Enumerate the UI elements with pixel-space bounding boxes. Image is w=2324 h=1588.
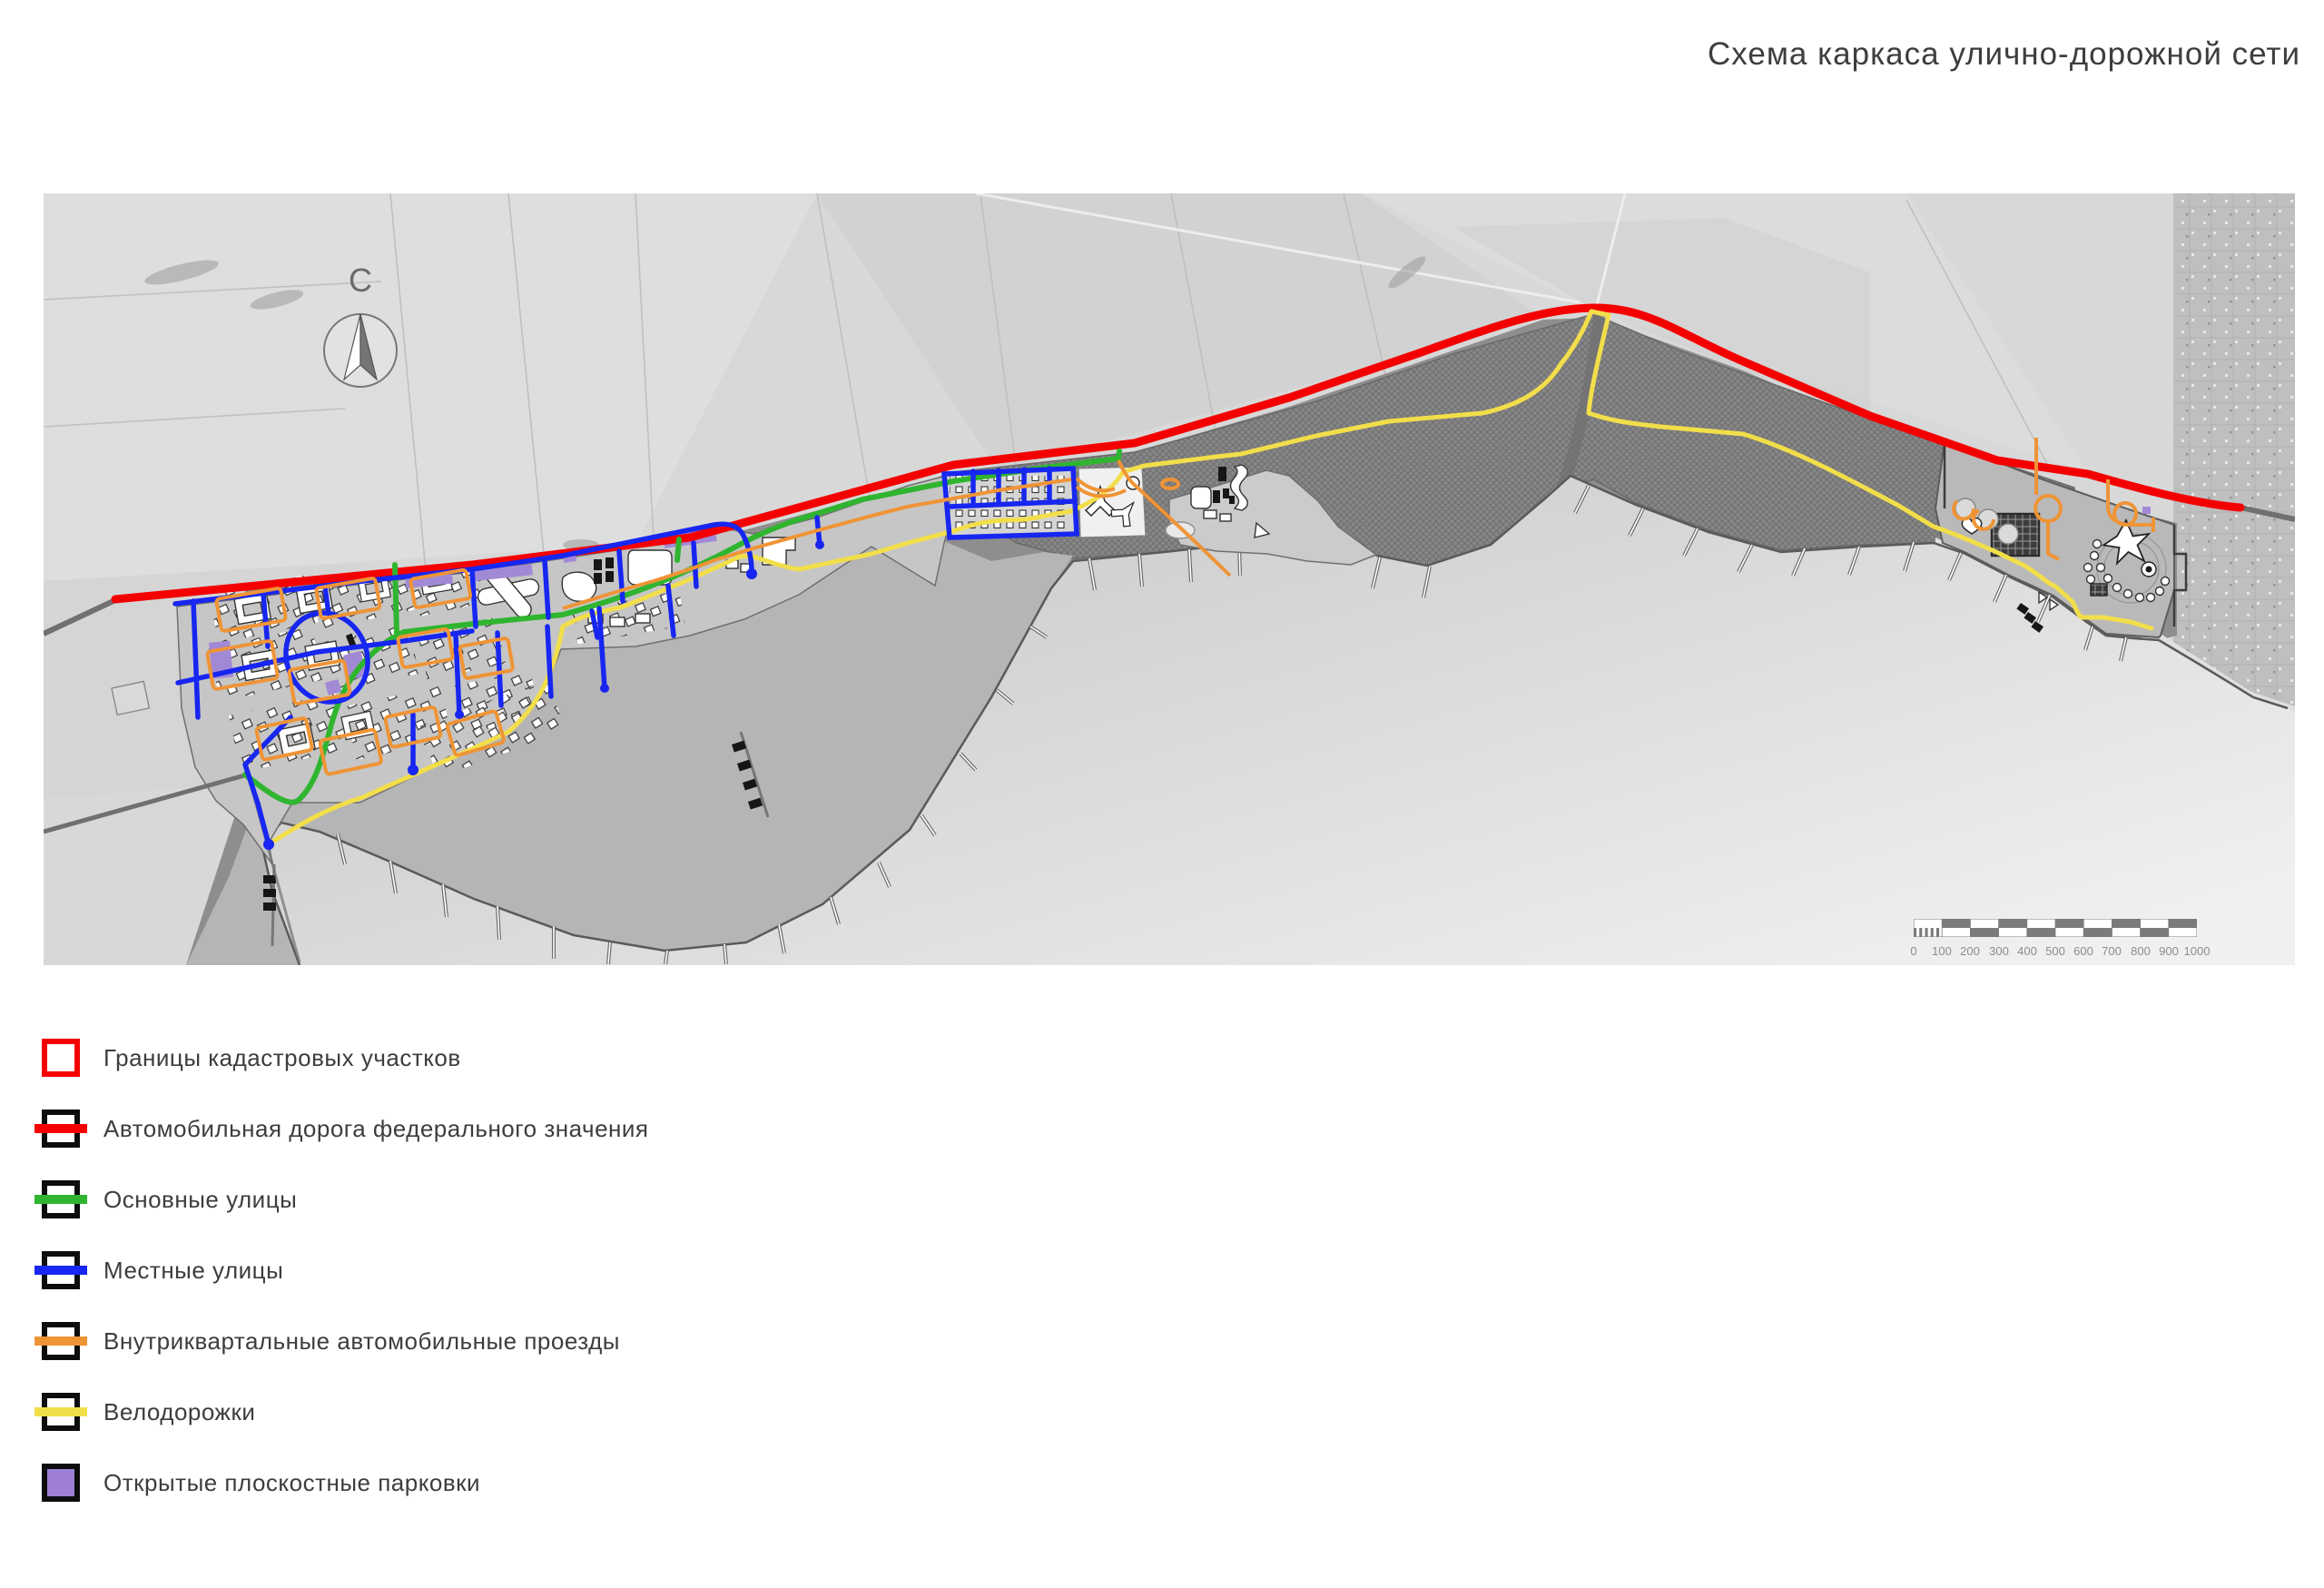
legend: Границы кадастровых участков Автомобильн… [42,1022,649,1518]
scale-bar: 0 100 200 300 400 500 600 700 800 900 10… [1914,919,2201,959]
legend-swatch-federal-road [42,1110,80,1148]
legend-swatch-parking [42,1464,80,1502]
village-area [2173,193,2295,708]
scale-label: 1000 [2184,944,2211,958]
scale-label: 900 [2159,944,2179,958]
legend-row-bike-paths: Велодорожки [42,1376,649,1447]
scale-label: 800 [2131,944,2151,958]
legend-label: Автомобильная дорога федерального значен… [103,1115,649,1143]
scale-label: 0 [1910,944,1916,958]
legend-swatch-cadastral [42,1039,80,1077]
scale-label: 100 [1932,944,1952,958]
page-title: Схема каркаса улично-дорожной сети [1708,36,2300,73]
scale-label: 500 [2045,944,2065,958]
scale-label: 600 [2073,944,2093,958]
scale-label: 300 [1989,944,2009,958]
legend-row-parking: Открытые плоскостные парковки [42,1447,649,1518]
legend-swatch-driveways [42,1322,80,1360]
legend-label: Открытые плоскостные парковки [103,1469,480,1497]
legend-swatch-local-streets [42,1251,80,1289]
legend-label: Велодорожки [103,1398,255,1426]
scale-label: 700 [2102,944,2122,958]
scale-bar-labels: 0 100 200 300 400 500 600 700 800 900 10… [1914,944,2197,959]
scale-label: 200 [1960,944,1980,958]
legend-row-driveways: Внутриквартальные автомобильные проезды [42,1306,649,1376]
compass: С [320,261,401,398]
scale-bar-graphic [1914,919,2197,937]
legend-label: Местные улицы [103,1257,283,1285]
legend-swatch-bike-paths [42,1393,80,1431]
legend-label: Основные улицы [103,1186,297,1214]
legend-label: Внутриквартальные автомобильные проезды [103,1327,620,1356]
compass-north-label: С [320,261,401,300]
legend-label: Границы кадастровых участков [103,1044,461,1072]
scale-label: 400 [2017,944,2037,958]
north-arrow-icon [322,307,399,392]
legend-row-federal-road: Автомобильная дорога федерального значен… [42,1093,649,1164]
legend-row-local-streets: Местные улицы [42,1235,649,1306]
legend-row-cadastral: Границы кадастровых участков [42,1022,649,1093]
legend-row-main-streets: Основные улицы [42,1164,649,1235]
page: { "title": "Схема каркаса улично-дорожно… [0,0,2324,1588]
legend-swatch-main-streets [42,1180,80,1218]
